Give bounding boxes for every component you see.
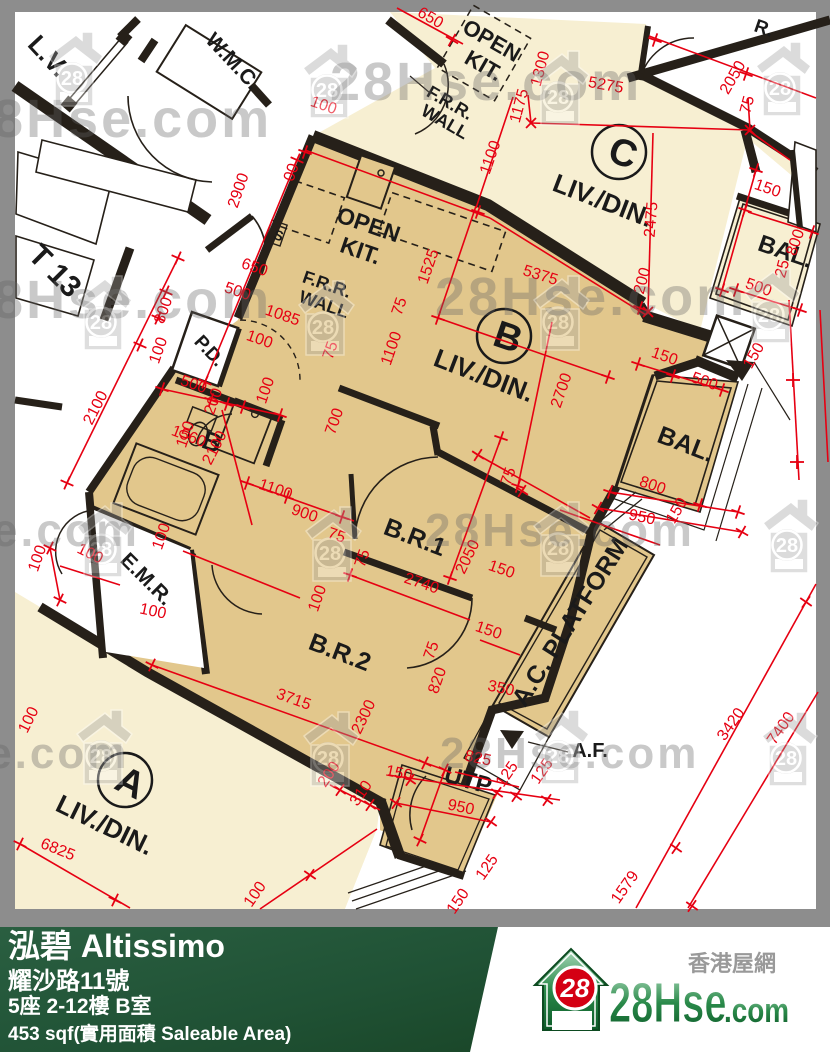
svg-text:28Hse.com: 28Hse.com: [0, 270, 272, 330]
svg-text:.com: .com: [724, 991, 789, 1029]
svg-text:28: 28: [316, 80, 338, 102]
svg-text:28: 28: [758, 305, 780, 327]
svg-text:28: 28: [90, 539, 112, 561]
svg-text:耀沙路11號: 耀沙路11號: [8, 967, 129, 995]
svg-text:28Hse.com: 28Hse.com: [330, 52, 642, 112]
svg-text:28: 28: [547, 87, 569, 109]
svg-text:28: 28: [61, 68, 83, 90]
svg-text:28: 28: [775, 748, 797, 770]
svg-text:28: 28: [317, 748, 339, 770]
svg-text:453 sqf(實用面積 Saleable Area): 453 sqf(實用面積 Saleable Area): [8, 1022, 291, 1045]
svg-text:28: 28: [776, 535, 798, 557]
svg-text:28: 28: [547, 538, 569, 560]
svg-text:28: 28: [312, 317, 334, 339]
svg-text:28Hse.com: 28Hse.com: [435, 267, 747, 327]
svg-text:28: 28: [90, 312, 112, 334]
svg-text:香港屋網: 香港屋網: [688, 951, 776, 976]
svg-text:2475: 2475: [641, 201, 661, 238]
svg-text:28: 28: [319, 543, 341, 565]
svg-text:28: 28: [560, 973, 590, 1003]
svg-text:28: 28: [547, 312, 569, 334]
svg-text:28Hse.com: 28Hse.com: [0, 89, 272, 149]
svg-text:28: 28: [547, 746, 569, 768]
svg-text:28: 28: [769, 78, 791, 100]
svg-text:5座 2-12樓 B室: 5座 2-12樓 B室: [8, 994, 152, 1018]
svg-text:28Hse: 28Hse: [609, 971, 727, 1035]
svg-text:28: 28: [90, 746, 112, 768]
svg-text:泓碧 Altissimo: 泓碧 Altissimo: [8, 928, 225, 964]
